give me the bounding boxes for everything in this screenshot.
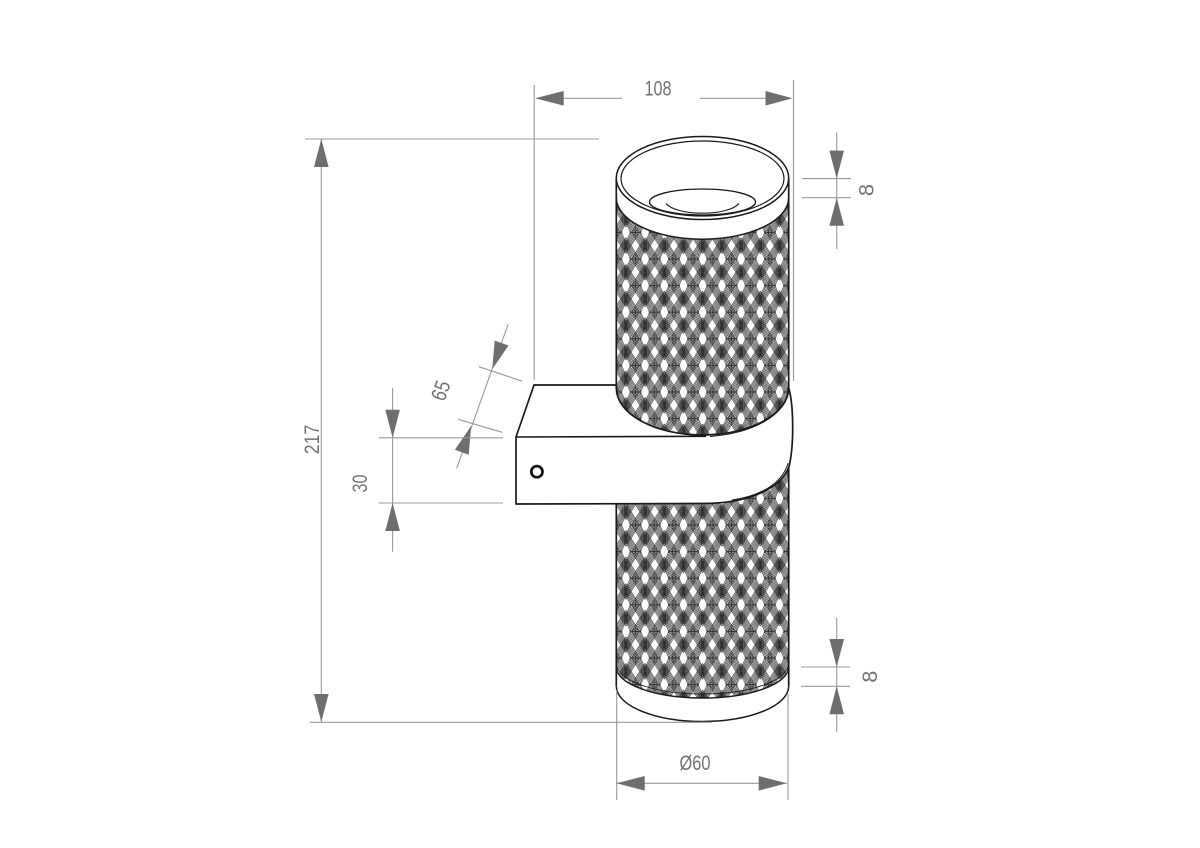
svg-text:Ø60: Ø60 [680,751,711,775]
svg-text:8: 8 [858,671,882,683]
svg-text:8: 8 [855,184,879,196]
svg-text:217: 217 [300,425,324,455]
svg-text:30: 30 [348,474,372,492]
svg-text:108: 108 [645,77,672,101]
